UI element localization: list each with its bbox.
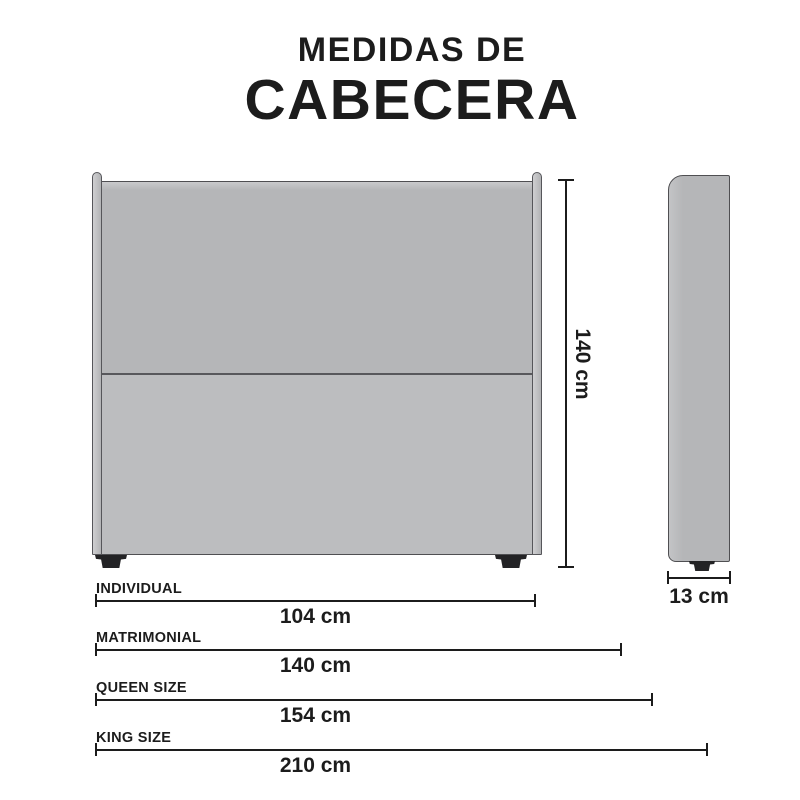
headboard-side-foot [689, 561, 715, 571]
height-dimension-tick-top [558, 179, 574, 181]
headboard-left-post [92, 172, 102, 555]
page-title-line2: CABECERA [12, 70, 800, 130]
depth-dimension-line [668, 577, 730, 579]
headboard-side-panel [668, 175, 730, 562]
size-value: 210 cm [95, 755, 536, 777]
height-dimension-line [565, 179, 567, 568]
depth-dimension-tick-right [729, 571, 731, 584]
size-dimension-line [95, 649, 622, 651]
size-tick-right [651, 693, 653, 706]
infographic-canvas: MEDIDAS DE CABECERA 140 cm 13 cm INDIVID… [0, 0, 800, 800]
depth-dimension-label: 13 cm [654, 586, 744, 608]
size-tick-right [706, 743, 708, 756]
size-dimension-line [95, 600, 536, 602]
size-label: KING SIZE [96, 731, 171, 746]
page-title: MEDIDAS DE CABECERA [12, 32, 800, 130]
height-dimension-tick-bottom [558, 566, 574, 568]
headboard-right-post [532, 172, 542, 555]
size-label: MATRIMONIAL [96, 631, 201, 646]
size-tick-right [620, 643, 622, 656]
depth-dimension-tick-left [667, 571, 669, 584]
size-value: 140 cm [95, 655, 536, 677]
headboard-front-panel [99, 181, 535, 555]
headboard-panel-seam [100, 373, 534, 554]
height-dimension-label: 140 cm [571, 319, 593, 409]
size-value: 104 cm [95, 606, 536, 628]
page-title-line1: MEDIDAS DE [12, 32, 800, 68]
size-label: INDIVIDUAL [96, 582, 182, 597]
headboard-front-foot-right [495, 555, 527, 568]
size-value: 154 cm [95, 705, 536, 727]
size-label: QUEEN SIZE [96, 681, 187, 696]
headboard-front-foot-left [95, 555, 127, 568]
size-dimension-line [95, 699, 653, 701]
size-dimension-line [95, 749, 708, 751]
